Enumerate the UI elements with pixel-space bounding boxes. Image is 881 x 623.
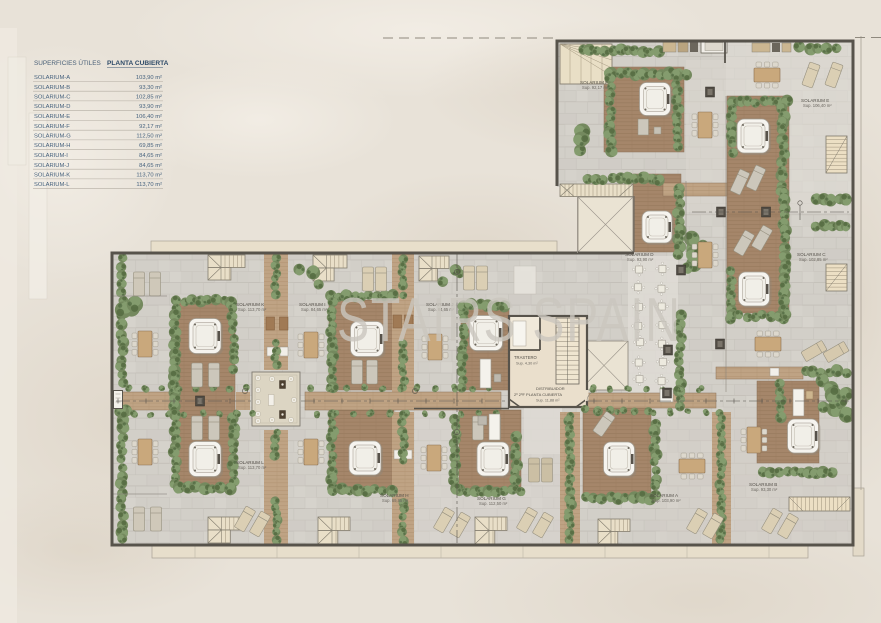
svg-text:93,30 m²: 93,30 m² (139, 85, 162, 91)
svg-text:102,85 m²: 102,85 m² (136, 95, 162, 101)
svg-text:SOLARIUM-F: SOLARIUM-F (34, 124, 70, 130)
svg-text:SOLARIUM-C: SOLARIUM-C (34, 95, 70, 101)
svg-text:103,90 m²: 103,90 m² (136, 75, 162, 81)
svg-text:Sup. 4,30 m²: Sup. 4,30 m² (516, 362, 538, 366)
svg-text:SOLARIUM-I: SOLARIUM-I (34, 153, 68, 159)
svg-text:Sup. 11,88 m²: Sup. 11,88 m² (536, 399, 560, 403)
svg-text:SOLARIUM-D: SOLARIUM-D (34, 104, 70, 110)
svg-text:DISTRIBUIDOR: DISTRIBUIDOR (536, 386, 565, 391)
svg-text:SOLARIUM-K: SOLARIUM-K (34, 173, 70, 179)
svg-text:PLANTA CUBIERTA: PLANTA CUBIERTA (107, 60, 169, 67)
svg-text:Sup. 69,85 m²: Sup. 69,85 m² (382, 498, 409, 503)
svg-text:SOLARIUM-G: SOLARIUM-G (34, 134, 71, 140)
svg-text:Sup. 113,70 m²: Sup. 113,70 m² (238, 465, 267, 470)
svg-text:69,85 m²: 69,85 m² (139, 143, 162, 149)
svg-text:SOLARIUM-H: SOLARIUM-H (34, 143, 70, 149)
svg-text:Sup. 113,70 m²: Sup. 113,70 m² (238, 307, 267, 312)
svg-text:SOLARIUM-E: SOLARIUM-E (34, 114, 70, 120)
svg-text:Sup. 84,65 m²: Sup. 84,65 m² (301, 307, 328, 312)
svg-text:SOLARIUM-L: SOLARIUM-L (34, 182, 70, 188)
svg-text:SOLARIUM-A: SOLARIUM-A (34, 75, 70, 81)
svg-text:113,70 m²: 113,70 m² (136, 173, 162, 179)
svg-text:84,65 m²: 84,65 m² (139, 163, 162, 169)
svg-text:Sup. 93,30 m²: Sup. 93,30 m² (751, 487, 778, 492)
svg-text:92,17 m²: 92,17 m² (139, 124, 162, 130)
svg-text:93,90 m²: 93,90 m² (139, 104, 162, 110)
svg-text:2º 2ºF PLANTA CUBIERTA: 2º 2ºF PLANTA CUBIERTA (514, 392, 562, 397)
svg-text:Sup. 92,17 m²: Sup. 92,17 m² (582, 85, 609, 90)
svg-text:STAIRS SPAIN: STAIRS SPAIN (337, 285, 682, 354)
svg-text:Sup. 103,90 m²: Sup. 103,90 m² (652, 498, 681, 503)
svg-text:84,65 m²: 84,65 m² (139, 153, 162, 159)
svg-text:Sup. 112,50 m²: Sup. 112,50 m² (479, 501, 508, 506)
svg-text:Sup. 106,40 m²: Sup. 106,40 m² (803, 103, 832, 108)
svg-text:112,50 m²: 112,50 m² (136, 134, 162, 140)
svg-text:SOLARIUM-J: SOLARIUM-J (34, 163, 69, 169)
svg-text:113,70 m²: 113,70 m² (136, 182, 162, 188)
svg-text:TRASTERO: TRASTERO (514, 355, 538, 360)
svg-text:Sup. 93,90 m²: Sup. 93,90 m² (627, 257, 654, 262)
svg-text:Sup. 102,85 m²: Sup. 102,85 m² (799, 257, 828, 262)
svg-text:SUPERFICIES ÚTILES: SUPERFICIES ÚTILES (34, 58, 101, 67)
svg-text:106,40 m²: 106,40 m² (136, 114, 162, 120)
svg-text:SOLARIUM-B: SOLARIUM-B (34, 85, 70, 91)
